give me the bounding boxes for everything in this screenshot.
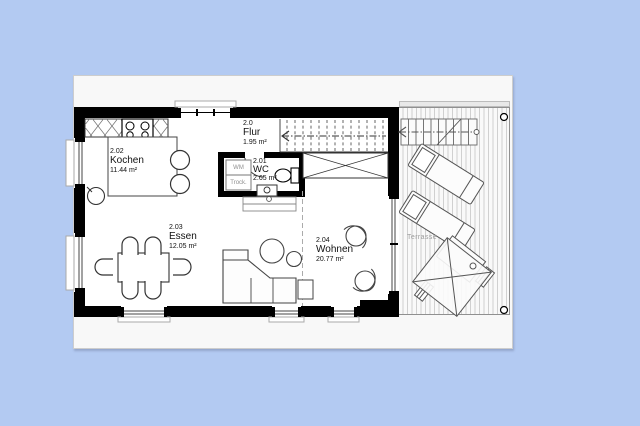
- room-label-wohnen: 2.04 Wohnen 20.77 m²: [316, 237, 353, 264]
- terrace-label: Terrasse: [407, 234, 437, 241]
- coffee-table-symbol: [260, 239, 302, 267]
- floorplan-viewer: 2.02 Kochen 11.44 m² 2.0 Flur 1.95 m² 2.…: [0, 0, 640, 426]
- room-name: Wohnen: [316, 245, 353, 256]
- wc-sink-symbol: [257, 185, 277, 196]
- room-name: WC: [253, 165, 277, 175]
- room-name: Essen: [169, 232, 197, 243]
- washing-machine-label: WM: [226, 160, 251, 175]
- sideboard-symbol: [243, 197, 296, 211]
- dryer-label: Trock.: [226, 175, 251, 190]
- sofa-symbol: [223, 250, 296, 303]
- room-name: Kochen: [110, 156, 144, 167]
- room-label-flur: 2.0 Flur 1.95 m²: [243, 120, 267, 147]
- room-area: 1.95 m²: [243, 139, 267, 147]
- room-name: Flur: [243, 128, 267, 139]
- room-label-essen: 2.03 Essen 12.05 m²: [169, 224, 197, 251]
- terrace-post-symbol: [501, 114, 508, 314]
- wardrobe-cross-symbol: [303, 153, 388, 178]
- room-area: 20.77 m²: [316, 256, 353, 264]
- room-area: 12.05 m²: [169, 243, 197, 251]
- floorplan-drawing: [0, 0, 640, 426]
- room-area: 11.44 m²: [110, 167, 144, 175]
- parasol-table-symbol: [413, 236, 495, 316]
- interior-stairs-symbol: [280, 119, 388, 152]
- room-area: 2.65 m²: [253, 175, 277, 182]
- dining-table-symbol: [118, 253, 169, 282]
- exterior-stairs-symbol: [399, 119, 479, 145]
- side-table-symbol: [298, 280, 313, 299]
- kitchen-sink-symbol: [87, 187, 105, 205]
- toilet-symbol: [275, 168, 299, 183]
- room-label-kochen: 2.02 Kochen 11.44 m²: [110, 148, 144, 175]
- room-label-wc: 2.01 WC 2.65 m²: [253, 158, 277, 182]
